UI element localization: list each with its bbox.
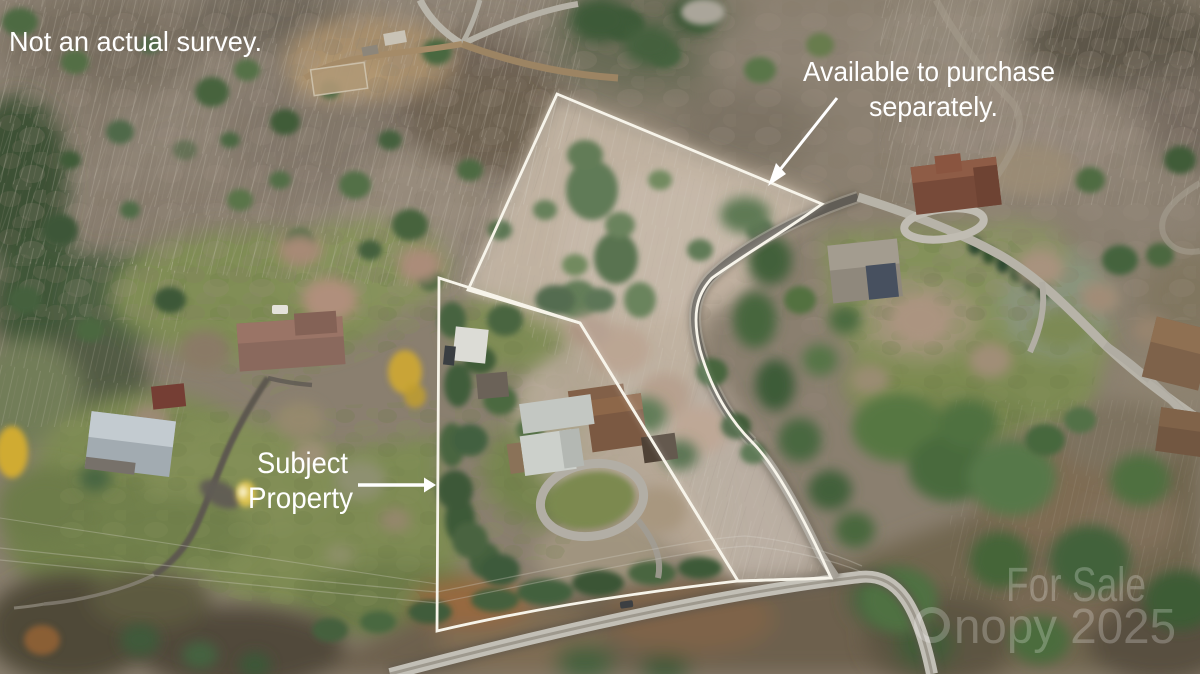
svg-text:Property: Property <box>248 482 353 515</box>
svg-text:nopy 2025: nopy 2025 <box>954 600 1176 654</box>
svg-text:Subject: Subject <box>257 447 349 480</box>
svg-text:separately.: separately. <box>869 91 998 122</box>
svg-text:Not an actual survey.: Not an actual survey. <box>9 26 262 57</box>
svg-text:Available to purchase: Available to purchase <box>803 56 1055 87</box>
